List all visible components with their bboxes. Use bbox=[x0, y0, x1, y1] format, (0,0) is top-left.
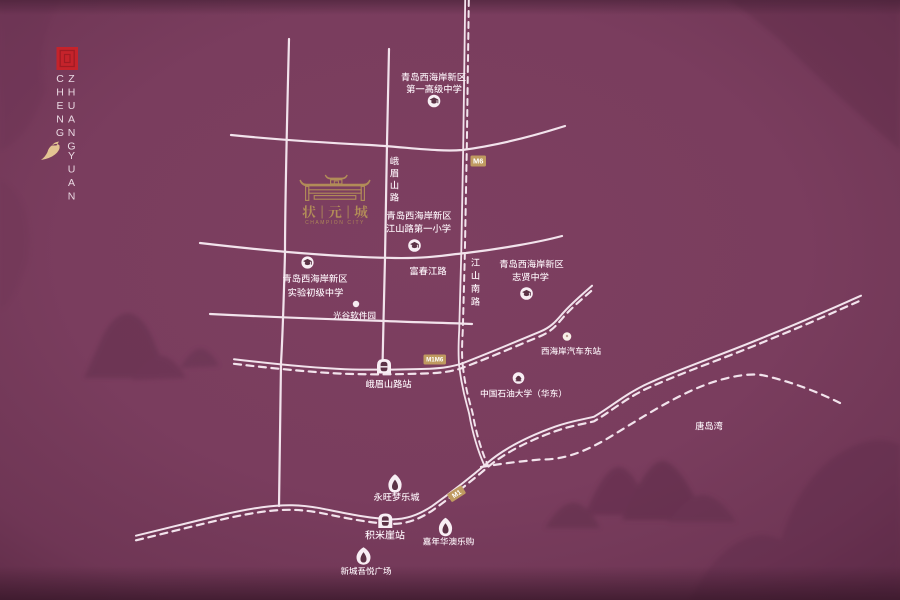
svg-text:M6: M6 bbox=[473, 157, 483, 166]
svg-text:N: N bbox=[68, 127, 76, 139]
svg-text:G: G bbox=[56, 127, 64, 139]
svg-text:CHAMPION CITY: CHAMPION CITY bbox=[305, 220, 365, 226]
svg-text:A: A bbox=[68, 177, 75, 189]
svg-text:C: C bbox=[56, 73, 64, 85]
svg-text:M1M6: M1M6 bbox=[426, 357, 444, 364]
svg-text:H: H bbox=[56, 87, 64, 99]
svg-text:E: E bbox=[56, 100, 63, 112]
svg-text:U: U bbox=[68, 164, 76, 176]
svg-text:N: N bbox=[56, 114, 64, 126]
svg-text:U: U bbox=[68, 100, 76, 112]
svg-text:N: N bbox=[68, 191, 76, 203]
svg-text:A: A bbox=[68, 114, 75, 126]
svg-text:H: H bbox=[68, 87, 76, 99]
svg-text:Y: Y bbox=[68, 150, 75, 162]
svg-text:Z: Z bbox=[68, 73, 75, 85]
